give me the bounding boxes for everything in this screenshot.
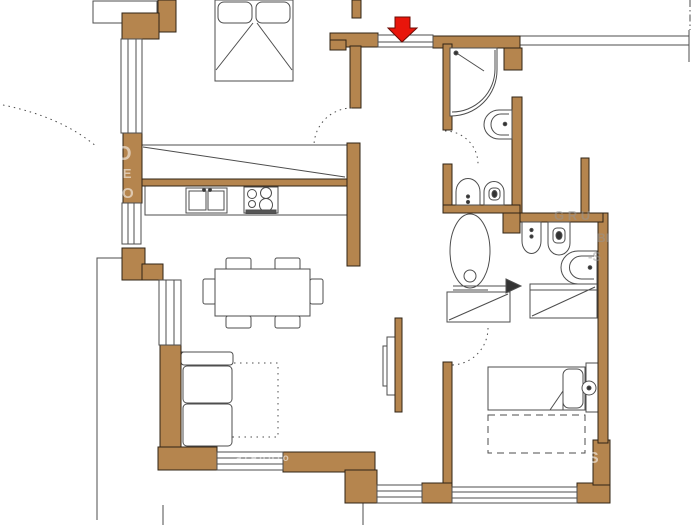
sofa-armrest: [181, 352, 233, 365]
dining-chair: [275, 258, 300, 270]
nightstand-lamp-dot: [587, 386, 591, 390]
bidet-tap-dot: [466, 200, 469, 203]
wall: [577, 483, 610, 503]
bidet-tap-dot: [466, 195, 469, 198]
wall: [443, 164, 452, 210]
window: [122, 203, 141, 244]
shower-head-dot: [454, 51, 458, 55]
bath-direction-arrow-head: [506, 279, 521, 293]
stove-burner: [249, 201, 256, 208]
wall: [581, 158, 589, 213]
watermark-letter: S: [443, 323, 451, 337]
window: [159, 280, 181, 345]
door-swing-arc-shower-room: [445, 131, 478, 164]
watermark-letter: a r e g g i o: [236, 453, 289, 464]
wall: [122, 13, 159, 39]
wall: [443, 362, 452, 483]
wall: [503, 213, 520, 233]
dining-chair: [203, 279, 216, 304]
dining-chair: [310, 279, 323, 304]
wall: [345, 470, 377, 503]
stove-burner: [261, 188, 272, 199]
stove-knob-strip: [246, 210, 276, 214]
bidet-tap-dot: [530, 235, 533, 238]
tv-partition-wall: [395, 318, 402, 412]
window: [121, 39, 142, 133]
watermark-letter: G R U: [554, 208, 590, 223]
dining-chair: [226, 258, 251, 270]
watermark-letter: ARE: [104, 166, 132, 181]
tv-shelf: [383, 346, 387, 386]
wall: [158, 447, 217, 470]
dining-chair: [226, 316, 251, 328]
window: [377, 485, 422, 503]
wall: [422, 483, 452, 503]
watermark-letter: BI: [597, 231, 609, 245]
wall: [330, 40, 346, 50]
watermark-letter: -S: [588, 249, 601, 264]
bathtub-drain: [464, 270, 476, 282]
wall: [504, 48, 522, 70]
wall-kitchen-north: [142, 179, 347, 186]
washbasin-tap-dot: [588, 266, 592, 270]
dining-table: [215, 269, 310, 316]
washbasin-tap-dot: [503, 122, 507, 126]
bed-pillow: [218, 2, 252, 23]
wall: [142, 264, 163, 280]
kitchen-sink-basin: [208, 191, 224, 210]
wall: [352, 0, 361, 18]
neighbor-door-arc: [3, 105, 97, 147]
kitchen-faucet-dot: [209, 189, 212, 192]
toilet-bowl-dot: [492, 191, 497, 198]
watermark-letter: S: [588, 450, 599, 467]
wall: [158, 0, 176, 32]
wall: [160, 345, 181, 452]
bed-pullout-dashed: [488, 415, 585, 453]
bed-pillow: [256, 2, 290, 23]
kitchen-faucet-dot: [203, 189, 206, 192]
wall: [512, 97, 522, 213]
wall: [347, 143, 360, 266]
balcony-left-outline: [97, 258, 122, 520]
sofa-cushion: [183, 366, 232, 403]
stove-burner: [248, 190, 257, 199]
kitchen-sink-basin: [189, 191, 206, 210]
wall: [283, 452, 375, 472]
watermark-letter: O: [122, 185, 134, 202]
wall: [598, 213, 608, 443]
window: [452, 487, 577, 503]
bidet-tap-dot: [530, 228, 533, 231]
floor-plan-svg: OAREOG R UBI-SSSa r e g g i o: [0, 0, 700, 525]
wall: [443, 205, 520, 213]
wall: [350, 46, 361, 108]
dining-chair: [275, 316, 300, 328]
toilet-bowl-dot: [556, 232, 562, 240]
bed-pillow: [563, 369, 583, 408]
door-swing-arc-bedroom1: [314, 108, 352, 146]
door-swing-arc-bedroom2: [451, 328, 488, 365]
floor-plan-canvas: OAREOG R UBI-SSSa r e g g i o: [0, 0, 700, 525]
tv-screen: [387, 337, 395, 395]
sofa-cushion: [183, 404, 232, 446]
watermark-letter: O: [116, 143, 132, 165]
